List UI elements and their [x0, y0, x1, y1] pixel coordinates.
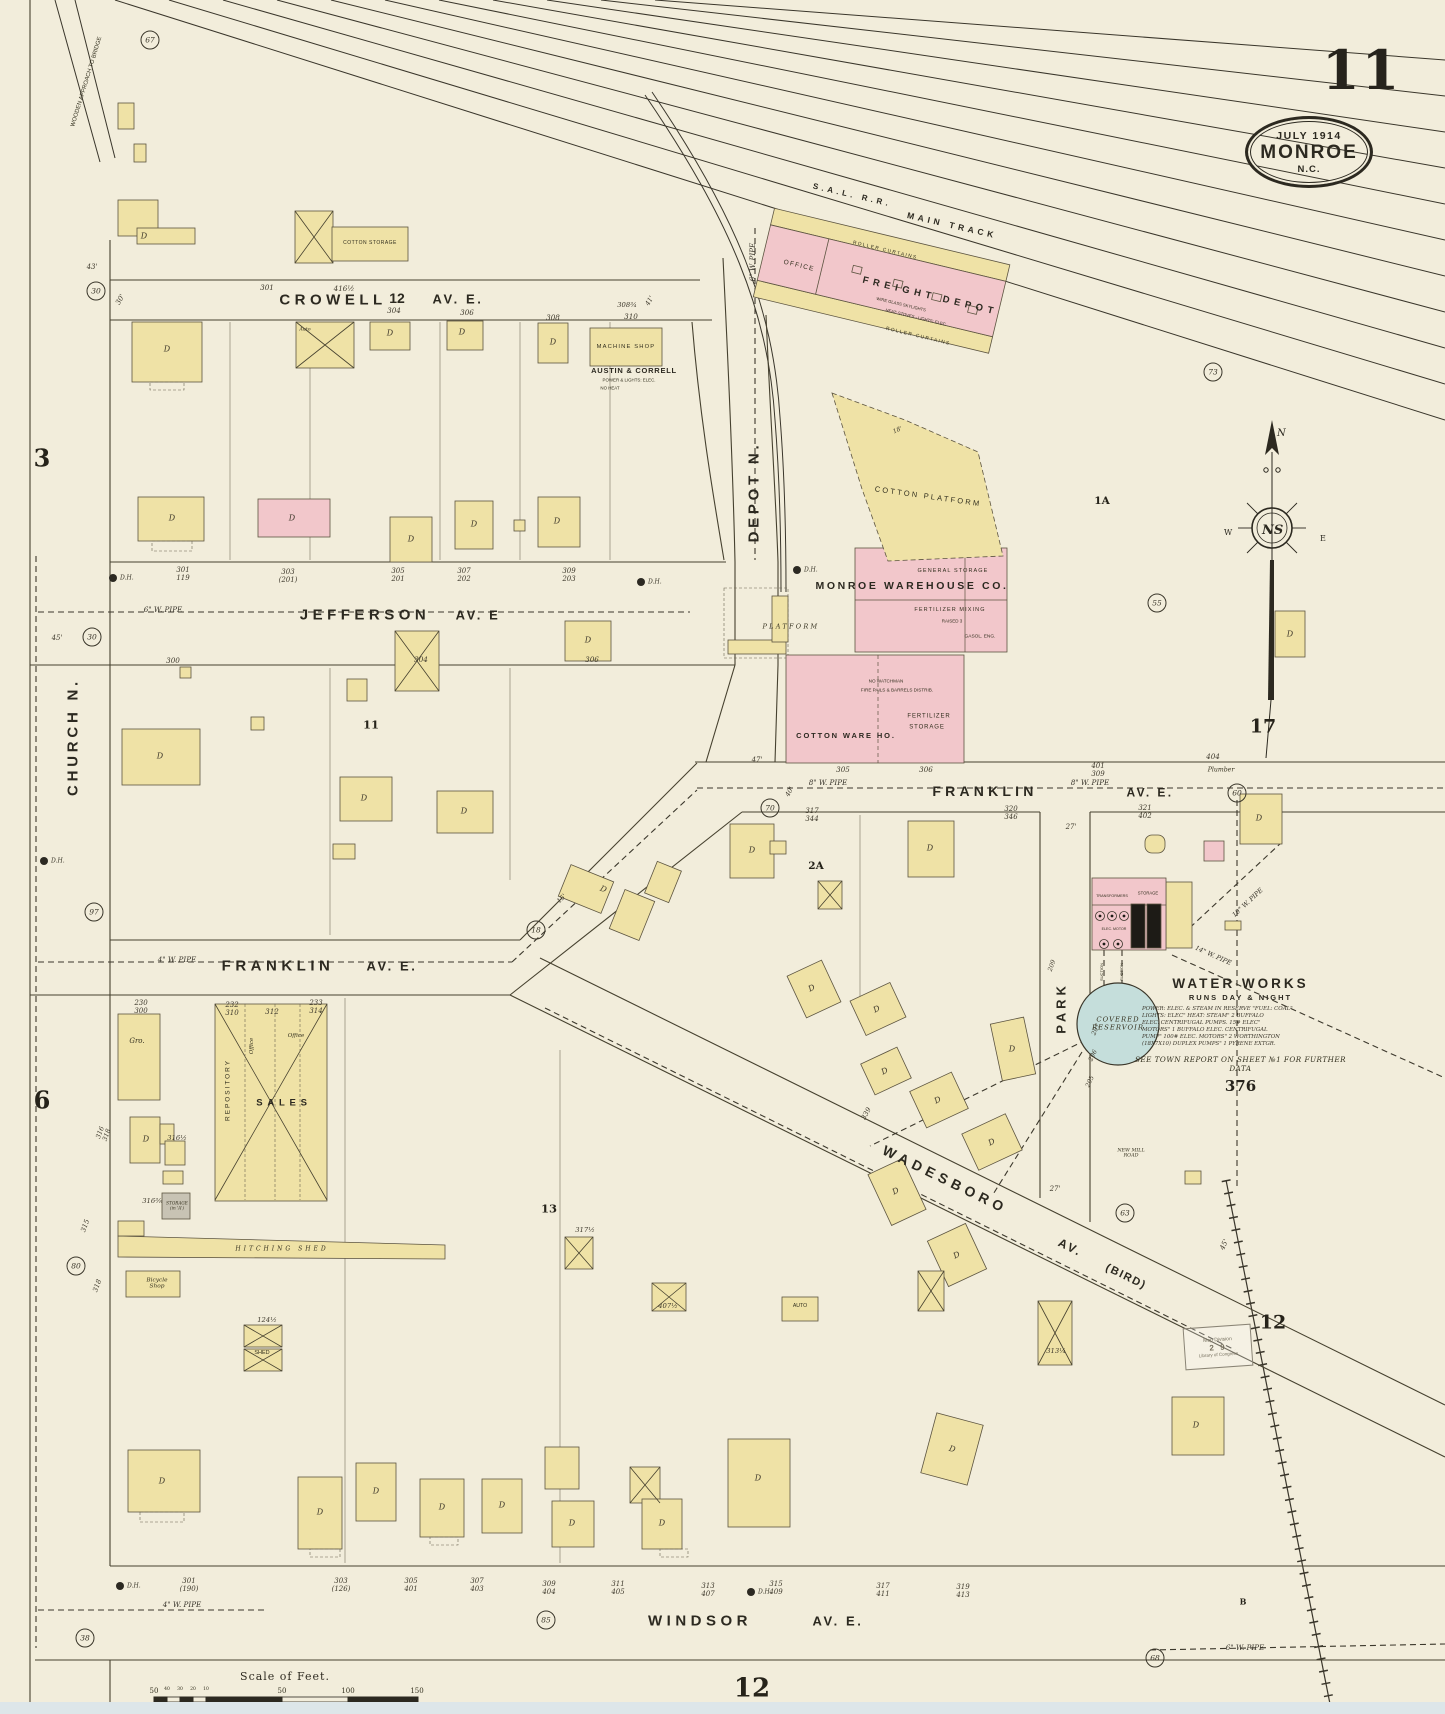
addr: 310 — [624, 313, 638, 321]
scale-tick: 50 — [150, 1687, 159, 1695]
dwelling: D — [598, 885, 607, 896]
double-hydrant-label: D.H. — [127, 1583, 141, 1590]
addr: 124½ — [257, 1317, 277, 1325]
marker-85: 85 — [537, 1611, 556, 1630]
bldg-grocery: Gro. — [129, 1038, 144, 1046]
dwelling: D — [373, 1488, 379, 1497]
stamp-line-3: Library of Congress — [1199, 1351, 1239, 1359]
pipe-6w-depot: 6" W. PIPE — [749, 243, 757, 282]
double-hydrant-dot — [637, 578, 645, 586]
dwelling: D — [361, 795, 367, 804]
addr: 303 (201) — [279, 569, 298, 585]
double-hydrant-dot — [109, 574, 117, 582]
addr: 306 — [919, 766, 933, 774]
water-works-detail-line: MOTORS" 1 BUFFALO ELEC. CENTRIFUGAL — [1142, 1027, 1353, 1034]
dwelling: D — [880, 1067, 890, 1078]
street-franklin-west-ave: AV. E. — [366, 960, 417, 975]
street-crowell-ave: AV. E. — [432, 293, 483, 308]
bldg-austin-correll: AUSTIN & CORRELL — [591, 367, 677, 375]
note-no-watchman: NO WATCHMAN — [869, 678, 904, 683]
addr: 206 — [1088, 1049, 1099, 1063]
water-works-details: POWER: ELEC. & STEAM IN RESERVE "FUEL: C… — [1128, 1006, 1353, 1048]
scale-tick: 150 — [410, 1687, 423, 1695]
street-jefferson-ave: AV. E — [456, 609, 501, 624]
street-church: CHURCH N. — [66, 678, 83, 796]
marker-63: 63 — [1116, 1204, 1135, 1223]
block-13: 13 — [541, 1203, 557, 1216]
scale-tick: 10 — [203, 1687, 209, 1692]
double-hydrant-label: D.H. — [120, 575, 134, 582]
double-hydrant-dot — [40, 857, 48, 865]
bldg-office-2: Office — [288, 1033, 305, 1039]
marker-18: 18 — [527, 921, 546, 940]
scale-tick: 40 — [164, 1687, 170, 1692]
addr: 308¾ — [617, 302, 637, 310]
water-works-detail-line: POWER: ELEC. & STEAM IN RESERVE "FUEL: C… — [1142, 1006, 1353, 1013]
pipe-6w-jefferson: 6" W. PIPE — [144, 606, 183, 614]
note-fire-pails: FIRE PAILS & BARRELS DISTRIB. — [861, 687, 933, 692]
title-oval: JULY 1914 MONROE N.C. — [1245, 116, 1373, 188]
bldg-fertilizer-storage-2: STORAGE — [909, 725, 945, 732]
marker-68: 68 — [1146, 1649, 1165, 1668]
addr: 305 — [836, 766, 850, 774]
dwelling: D — [157, 753, 163, 762]
dwelling: D — [289, 515, 295, 524]
addr: 301 119 — [176, 567, 189, 583]
adjacent-sheet-12-bottom: 12 — [734, 1674, 770, 1703]
dwelling: D — [1009, 1046, 1015, 1055]
marker-55: 55 — [1148, 594, 1167, 613]
bldg-office-1: Office — [249, 1038, 255, 1055]
addr: 205 — [1085, 1075, 1096, 1089]
dwelling: D — [1193, 1422, 1199, 1431]
water-works-subtitle: RUNS DAY & NIGHT — [1128, 993, 1353, 1002]
bldg-bicycle-shop: Bicycle Shop — [146, 1278, 167, 1291]
dwelling: D — [461, 808, 467, 817]
sheet-number: 11 — [1322, 38, 1401, 102]
double-hydrant-label: D.H. — [51, 858, 65, 865]
block-2a: 2A — [808, 861, 823, 873]
dwelling: D — [807, 984, 817, 995]
bldg-auto-2: Auto — [299, 327, 310, 332]
pipe-4w-windsor: 4" W. PIPE — [163, 1601, 202, 1609]
addr: 319 413 — [956, 1584, 969, 1600]
pipe-suction-1: SUCTION — [1100, 963, 1104, 981]
scale-tick: 30 — [177, 1687, 183, 1692]
marker-70: 70 — [761, 799, 780, 818]
block-num-crowell: 12 — [389, 291, 405, 307]
double-hydrant-dot — [793, 566, 801, 574]
adjacent-sheet-6: 6 — [34, 1088, 51, 1115]
dwelling: D — [891, 1187, 901, 1198]
addr: 313 407 — [701, 1583, 714, 1599]
marker-80: 80 — [67, 1257, 86, 1276]
pipe-6w-bottom: 6" W. PIPE — [1226, 1644, 1265, 1652]
addr: 318 — [92, 1279, 104, 1294]
dwelling: D — [1287, 631, 1293, 640]
bldg-machine-shop: MACHINE SHOP — [597, 344, 656, 350]
street-franklin-west: FRANKLIN — [222, 959, 335, 976]
dwelling: D — [439, 1504, 445, 1513]
addr: 304 — [414, 656, 428, 664]
addr: 301 (190) — [180, 1578, 199, 1594]
addr: 305 401 — [404, 1578, 417, 1594]
pipe-4w-franklin: 4" W. PIPE — [158, 956, 197, 964]
addr: 312 — [265, 1008, 279, 1016]
title-date: JULY 1914 — [1276, 130, 1341, 142]
road-new-mill: NEW MILL ROAD — [1117, 1149, 1144, 1160]
dwelling: D — [659, 1520, 665, 1529]
addr: 317½ — [575, 1227, 595, 1235]
bldg-fertilizer-mixing: FERTILIZER MIXING — [914, 607, 985, 613]
library-stamp: Map Division 2 9 Library of Congress — [1183, 1324, 1254, 1371]
addr: 317 411 — [876, 1583, 889, 1599]
marker-30b: 30 — [83, 628, 102, 647]
bldg-hitching-shed: HITCHING SHED — [235, 1247, 328, 1254]
note-austin-heat: NO HEAT — [600, 387, 619, 392]
dim-47: 47' — [752, 757, 763, 765]
addr: 309 203 — [562, 568, 575, 584]
addr: 305 201 — [391, 568, 404, 584]
addr: 301 — [260, 284, 274, 292]
addr: 339 — [861, 1106, 874, 1121]
pipe-suction-2: SUCTION — [1120, 963, 1124, 981]
dim-41: 41' — [644, 295, 655, 307]
bldg-gasol-eng: GASOL. ENG. — [965, 634, 996, 639]
addr: 300 — [166, 657, 180, 665]
street-windsor-ave: AV. E. — [812, 1615, 863, 1630]
bldg-cotton-platform: COTTON PLATFORM — [874, 485, 982, 508]
marker-97: 97 — [85, 903, 104, 922]
bldg-auto: AUTO — [793, 1304, 807, 1310]
bldg-cotton-storage: COTTON STORAGE — [343, 241, 397, 247]
double-hydrant-label: D.H. — [758, 1589, 772, 1596]
bldg-elec-motor: ELEC. MOTOR — [1102, 927, 1127, 931]
railroad-main-track: MAIN TRACK — [906, 211, 998, 241]
dwelling: D — [585, 637, 591, 646]
bldg-storage-gray: STORAGE (in 'A') — [166, 1201, 188, 1210]
dwelling: D — [141, 233, 147, 242]
bldg-transformers: TRANSFORMERS — [1096, 894, 1128, 898]
addr: 316⅜ — [142, 1198, 162, 1206]
bldg-general-storage: GENERAL STORAGE — [918, 568, 989, 574]
note-austin-power: POWER & LIGHTS: ELEC. — [603, 379, 656, 384]
addr: 315 — [80, 1219, 92, 1234]
addr: 307 403 — [470, 1578, 483, 1594]
addr: 313¼ — [1046, 1348, 1066, 1356]
ref-b: B — [1240, 1598, 1247, 1607]
dim-15: 15' — [556, 893, 568, 905]
scale-tick: 50 — [278, 1687, 287, 1695]
addr: 317 344 — [805, 808, 818, 824]
scan-edge — [0, 1702, 1445, 1714]
addr: 209 — [1048, 959, 1059, 972]
water-works-detail-line: LIGHTS: ELEC" HEAT: STEAM" 2 BUFFALO — [1142, 1013, 1353, 1020]
pipe-14w: 14" W. PIPE — [1194, 945, 1233, 968]
dwelling: D — [987, 1138, 997, 1149]
dim-43: 43' — [87, 264, 98, 272]
addr: 407½ — [658, 1303, 678, 1311]
bldg-raised: RAISED 3 — [942, 618, 963, 623]
bldg-monroe-warehouse: MONROE WAREHOUSE CO. — [815, 581, 1008, 593]
addr: 309 404 — [542, 1581, 555, 1597]
dwelling: D — [550, 339, 556, 348]
bldg-fd-office: OFFICE — [783, 259, 815, 273]
dim-27b: 27' — [1050, 1186, 1061, 1194]
water-works-description: WATER WORKS RUNS DAY & NIGHT POWER: ELEC… — [1128, 976, 1353, 1095]
street-crowell: CROWELL — [279, 293, 386, 310]
addr: 306 — [460, 309, 474, 317]
dwelling: D — [872, 1005, 882, 1016]
addr: 304 — [387, 307, 401, 315]
marker-73: 73 — [1204, 363, 1223, 382]
adjacent-sheet-17: 17 — [1250, 716, 1276, 737]
dwelling: D — [1256, 815, 1262, 824]
adjacent-sheet-12-right: 12 — [1260, 1312, 1286, 1333]
title-city: MONROE — [1260, 142, 1358, 164]
street-franklin-east-ave: AV. E. — [1126, 786, 1173, 799]
dwelling: D — [948, 1445, 957, 1455]
street-wadesboro-av: AV. — [1056, 1236, 1085, 1259]
dim-30: 30' — [115, 293, 127, 306]
dwelling: D — [569, 1520, 575, 1529]
bldg-fd-roller-s: ROLLER CURTAINS — [885, 327, 951, 348]
pipe-10w: 10" W. PIPE — [1231, 887, 1265, 919]
bldg-platform: PLATFORM — [763, 623, 820, 630]
bldg-plumber: Plumber — [1208, 768, 1235, 775]
addr: 230 300 — [134, 1000, 147, 1016]
dwelling: D — [143, 1136, 149, 1145]
dwelling: D — [408, 536, 414, 545]
addr: 233 314 — [309, 1000, 322, 1016]
double-hydrant-dot — [747, 1588, 755, 1596]
dim-40: 40' — [784, 786, 795, 798]
marker-60: 60 — [1228, 784, 1247, 803]
double-hydrant-label: D.H. — [804, 567, 818, 574]
addr: 303 (126) — [332, 1578, 351, 1594]
dwelling: D — [159, 1478, 165, 1487]
water-works-detail-line: (18X7X10) DUPLEX PUMPS" 1 PYRENE EXTGR. — [1142, 1041, 1353, 1048]
water-works-title: WATER WORKS — [1128, 976, 1353, 991]
dwelling: D — [471, 521, 477, 530]
dwelling: D — [387, 330, 393, 339]
addr: 321 402 — [1138, 805, 1151, 821]
bldg-sales: SALES — [256, 1099, 311, 1110]
map-labels-layer: CROWELL12AV. E.JEFFERSONAV. EFRANKLINAV.… — [0, 0, 1445, 1714]
pipe-8w-franklin-2: 8" W. PIPE — [1071, 779, 1110, 787]
block-1a: 1A — [1094, 496, 1109, 508]
bldg-t-storage: STORAGE — [1138, 892, 1158, 897]
addr: 320 346 — [1004, 806, 1017, 822]
dim-45b: 45' — [1219, 1238, 1231, 1251]
street-park: PARK — [1055, 982, 1070, 1033]
dwelling: D — [933, 1096, 943, 1107]
title-state: N.C. — [1298, 164, 1321, 175]
dwelling: D — [459, 329, 465, 338]
block-11: 11 — [363, 719, 379, 732]
addr: 306 — [585, 656, 599, 664]
marker-38: 38 — [76, 1629, 95, 1648]
pipe-8w-franklin-1: 8" W. PIPE — [809, 779, 848, 787]
double-hydrant-label: D.H. — [648, 579, 662, 586]
road-wooden-approach: WOODEN APPROACH TO BRIDGE — [70, 36, 104, 128]
addr: 308 — [546, 314, 560, 322]
water-works-detail-line: ELEC. CENTRIFUGAL PUMPS. 15# ELEC" — [1142, 1020, 1353, 1027]
bldg-repository: REPOSITORY — [224, 1059, 231, 1121]
dwelling: D — [952, 1251, 962, 1262]
scale-tick: 20 — [190, 1687, 196, 1692]
street-wadesboro-bird: (BIRD) — [1103, 1262, 1148, 1292]
dwelling: D — [749, 847, 755, 856]
street-franklin-east: FRANKLIN — [932, 784, 1037, 800]
addr: 311 405 — [611, 1581, 624, 1597]
bldg-fd-roller-n: ROLLER CURTAINS — [852, 241, 918, 262]
dwelling: D — [755, 1475, 761, 1484]
dim-27a: 27' — [1066, 824, 1077, 832]
addr: 416½ — [334, 285, 355, 293]
adjacent-sheet-3: 3 — [34, 446, 51, 473]
dwelling: D — [499, 1502, 505, 1511]
dwelling: D — [169, 515, 175, 524]
street-depot: DEPOT N. — [747, 442, 764, 543]
street-windsor: WINDSOR — [648, 1614, 752, 1631]
addr: 401 309 — [1091, 763, 1104, 779]
dwelling: D — [164, 346, 170, 355]
sanborn-map-sheet: N W E NS CROWELL12AV. E.JEFFERSONAV. EFR… — [0, 0, 1445, 1714]
street-jefferson: JEFFERSON — [300, 608, 431, 625]
addr: 307 202 — [457, 568, 470, 584]
scale-tick: 100 — [341, 1687, 354, 1695]
dwelling: D — [317, 1509, 323, 1518]
railroad-name: S.A.L. R.R. — [812, 183, 892, 210]
double-hydrant-dot — [116, 1582, 124, 1590]
addr: 316 318 — [95, 1126, 113, 1143]
scale-title: Scale of Feet. — [240, 1670, 330, 1683]
water-works-note: SEE TOWN REPORT ON SHEET №1 FOR FURTHER … — [1128, 1055, 1353, 1073]
bldg-shed: SHED — [254, 1350, 269, 1356]
marker-67: 67 — [141, 31, 160, 50]
addr: 316½ — [167, 1135, 187, 1143]
bldg-cotton-ware-house: COTTON WARE HO. — [796, 732, 896, 740]
dwelling: D — [927, 845, 933, 854]
dim-cotton-platform: 18' — [892, 426, 903, 436]
block-number-376: 376 — [1128, 1077, 1353, 1095]
marker-30a: 30 — [87, 282, 106, 301]
dwelling: D — [554, 518, 560, 527]
dim-45a: 45' — [52, 635, 63, 643]
addr: 232 310 — [225, 1002, 238, 1018]
street-wadesboro: WADESBORO — [880, 1143, 1010, 1217]
addr: 404 — [1206, 753, 1220, 761]
bldg-fertilizer-storage-1: FERTILIZER — [907, 714, 950, 721]
